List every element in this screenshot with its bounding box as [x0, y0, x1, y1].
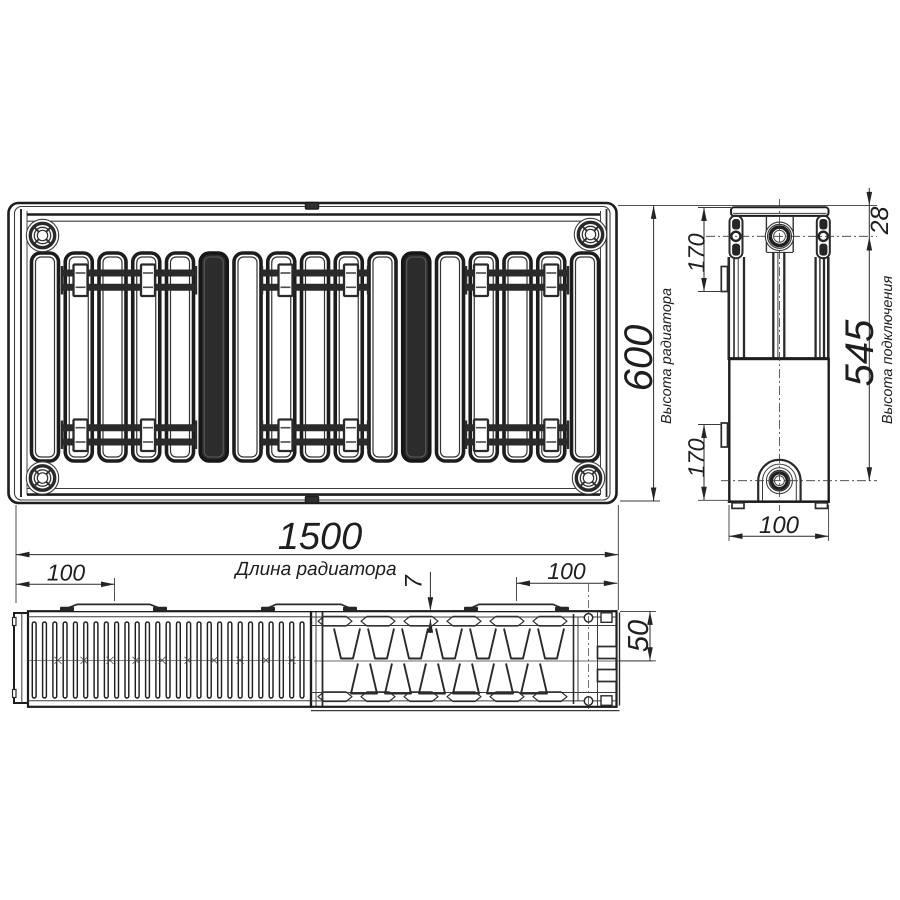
svg-text:Высота радиатора: Высота радиатора — [659, 288, 675, 424]
svg-text:170: 170 — [684, 438, 710, 477]
svg-text:28: 28 — [866, 207, 894, 236]
svg-text:1500: 1500 — [278, 516, 363, 558]
svg-text:Высота подключения: Высота подключения — [880, 276, 896, 425]
svg-text:100: 100 — [759, 512, 800, 539]
svg-text:7: 7 — [401, 574, 428, 589]
svg-text:170: 170 — [684, 233, 710, 272]
svg-text:545: 545 — [838, 319, 882, 386]
svg-text:Длина радиатора: Длина радиатора — [233, 559, 396, 580]
svg-text:100: 100 — [547, 558, 586, 584]
svg-text:600: 600 — [617, 325, 661, 392]
svg-text:100: 100 — [47, 560, 86, 586]
svg-text:50: 50 — [623, 620, 655, 652]
